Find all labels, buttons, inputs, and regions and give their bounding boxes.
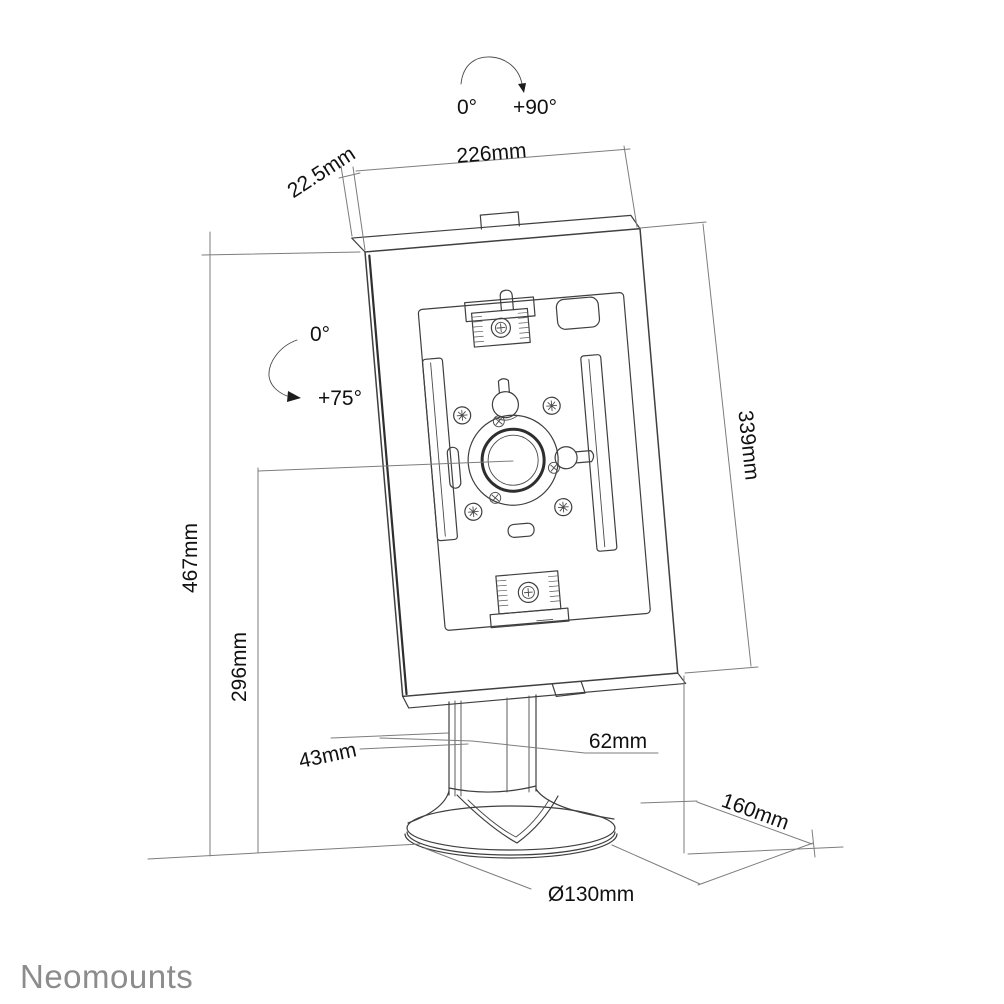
base-disc-top bbox=[407, 806, 615, 850]
dim-label-pole-depth: 62mm bbox=[589, 730, 647, 753]
rotation-indicator: 0° +90° bbox=[457, 57, 557, 119]
base-collar bbox=[449, 786, 536, 792]
tilt-indicator: 0° +75° bbox=[269, 323, 362, 410]
right-rail bbox=[581, 354, 617, 551]
left-rail-groove bbox=[431, 363, 446, 536]
mounting-plate bbox=[418, 292, 650, 630]
tilt-arc-icon bbox=[269, 340, 297, 396]
rotation-from-label: 0° bbox=[457, 96, 477, 119]
rotation-to-label: +90° bbox=[513, 96, 557, 119]
right-rail-groove bbox=[589, 359, 605, 546]
tilt-from-label: 0° bbox=[310, 323, 330, 346]
brand-logo: Neomounts bbox=[20, 958, 193, 995]
dim-pole-depth: 62mm bbox=[380, 730, 658, 753]
tilt-arrowhead-icon bbox=[287, 391, 301, 402]
enclosure-left-edge bbox=[369, 256, 406, 694]
rotation-mount-flange bbox=[464, 412, 561, 509]
base-bell-left bbox=[408, 791, 449, 823]
camera-cutout-notch bbox=[556, 296, 600, 329]
bottom-slot bbox=[508, 523, 535, 538]
left-rail bbox=[422, 358, 457, 541]
dim-label-total-height: 467mm bbox=[179, 523, 202, 593]
dim-label-enclosure-height: 339mm bbox=[733, 409, 763, 481]
tablet-enclosure bbox=[351, 201, 686, 710]
pole bbox=[449, 695, 536, 796]
dim-pole-width: 43mm bbox=[297, 733, 468, 773]
bottom-clamp-screw-cross-icon bbox=[524, 588, 533, 597]
enclosure-back-outline bbox=[365, 229, 678, 697]
dim-label-pole-width: 43mm bbox=[297, 738, 359, 773]
top-clamp bbox=[464, 288, 537, 348]
rotation-mount-bore bbox=[486, 433, 540, 487]
dim-label-base-diameter: Ø130mm bbox=[548, 883, 634, 906]
enclosure-top-face bbox=[352, 214, 640, 253]
dim-label-enclosure-width: 226mm bbox=[456, 139, 528, 168]
floor-line-left bbox=[148, 844, 420, 859]
dim-label-center-height: 296mm bbox=[228, 632, 251, 702]
dim-base-depth: 160mm bbox=[641, 676, 815, 857]
dim-label-base-depth: 160mm bbox=[718, 789, 792, 835]
left-slot bbox=[447, 447, 461, 489]
floor-line-right bbox=[688, 847, 843, 854]
rotation-arc-icon bbox=[461, 57, 522, 84]
dim-label-enclosure-thickness: 22.5mm bbox=[283, 142, 359, 203]
enclosure-bottom-face bbox=[403, 672, 686, 708]
rotation-arrowhead-icon bbox=[518, 83, 526, 93]
tilt-to-label: +75° bbox=[318, 387, 362, 410]
bottom-clamp bbox=[487, 570, 569, 627]
bottom-clamp-flange bbox=[490, 608, 569, 628]
base bbox=[405, 786, 617, 858]
dimension-diagram: 0° +90° 0° +75° bbox=[0, 0, 1004, 1004]
base-bell-right bbox=[536, 789, 614, 819]
top-clamp-screw-cross-icon bbox=[497, 323, 506, 332]
dim-base-diameter: Ø130mm bbox=[424, 845, 700, 906]
rotation-mount bbox=[464, 411, 562, 509]
technical-drawing-page: 0° +90° 0° +75° bbox=[0, 0, 1004, 1004]
floor-line-diagonal bbox=[698, 843, 813, 885]
cable-guide-outer bbox=[457, 795, 558, 843]
rotation-mount-ring bbox=[480, 427, 547, 494]
